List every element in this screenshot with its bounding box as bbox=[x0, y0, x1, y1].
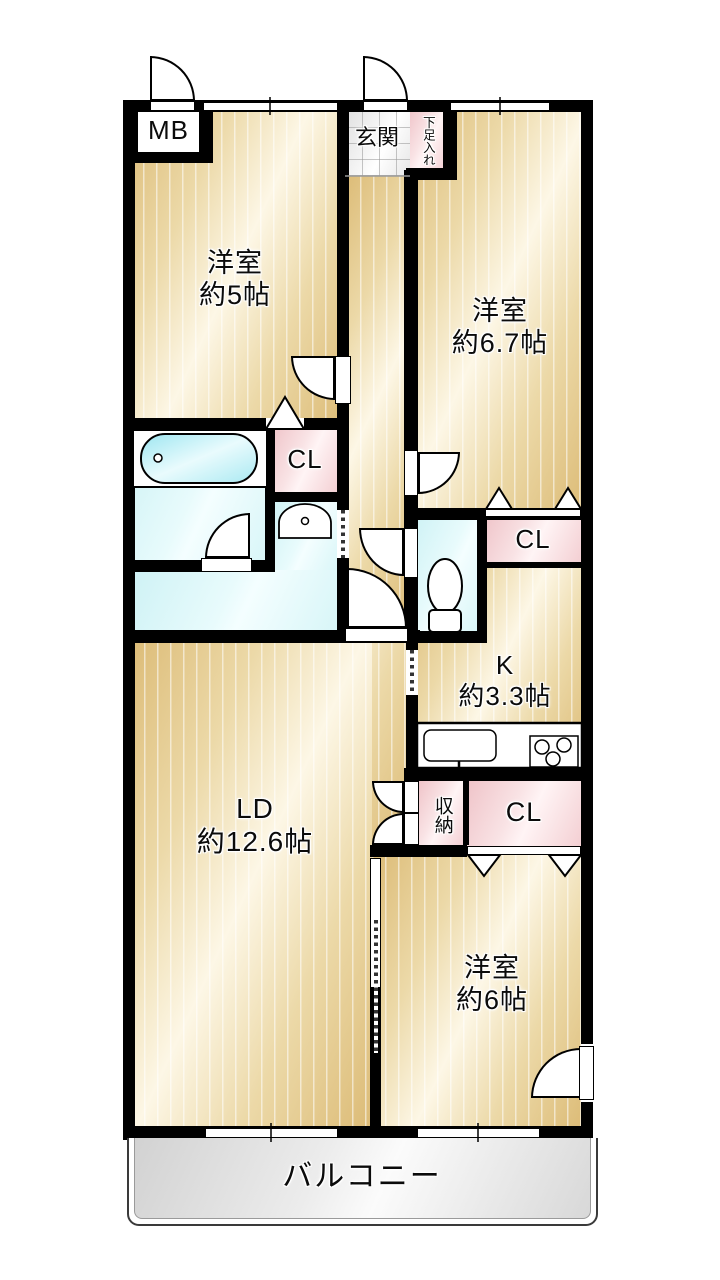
kitchen-size: 約3.3帖 bbox=[458, 681, 551, 712]
closet3-label: CL bbox=[467, 781, 581, 845]
closet1-opening bbox=[266, 418, 304, 430]
bedroom1-window bbox=[203, 102, 338, 111]
washroom-floor-lower bbox=[131, 570, 341, 634]
floorplan-canvas: MB 玄関 下足入れ 洋室 約5帖 洋室 約6.7帖 CL CL K 約3.3帖… bbox=[0, 0, 720, 1280]
storage-door-leaf-bottom bbox=[404, 813, 419, 845]
shoebox-label: 下足入れ bbox=[412, 110, 443, 172]
closet2-label: CL bbox=[483, 514, 583, 564]
closet1-label: CL bbox=[271, 430, 339, 488]
bedroom3-label: 洋室 約6帖 bbox=[412, 943, 572, 1027]
wall-toilet-bottom bbox=[404, 631, 487, 643]
bedroom1-door-leaf bbox=[335, 356, 351, 404]
bedroom3-name: 洋室 bbox=[464, 953, 520, 985]
closet1-label-text: CL bbox=[287, 444, 322, 475]
genkan-label: 玄関 bbox=[345, 118, 409, 158]
bedroom1-label: 洋室 約5帖 bbox=[160, 238, 310, 322]
toilet-door-leaf bbox=[404, 528, 418, 578]
bedroom1-name: 洋室 bbox=[207, 248, 263, 280]
wall-right bbox=[581, 100, 593, 1140]
washroom-opening-dash bbox=[341, 510, 345, 558]
living-name: LD bbox=[236, 792, 274, 825]
living-balcony-window bbox=[205, 1128, 338, 1138]
wall-kitchen-bottom bbox=[404, 768, 593, 781]
storage-door-leaf-top bbox=[404, 781, 419, 813]
entrance-door-swing bbox=[363, 56, 408, 101]
bedroom2-door-leaf bbox=[404, 450, 418, 496]
storage-label-text: 収納 bbox=[430, 796, 452, 834]
genkan-label-text: 玄関 bbox=[355, 125, 399, 151]
balcony-label: バルコニー bbox=[202, 1155, 522, 1199]
balcony-label-text: バルコニー bbox=[282, 1159, 441, 1194]
closet2-label-text: CL bbox=[515, 524, 550, 555]
wall-left bbox=[123, 100, 135, 1140]
closet3-label-text: CL bbox=[506, 797, 543, 829]
closet3-folding-track bbox=[467, 846, 581, 855]
bedroom2-window bbox=[450, 102, 550, 111]
bedroom1-size: 約5帖 bbox=[199, 280, 271, 312]
mb-label-text: MB bbox=[148, 115, 189, 146]
storage-label: 収納 bbox=[419, 785, 464, 845]
bedroom2-size: 約6.7帖 bbox=[452, 328, 549, 360]
wall-storage-bottom bbox=[370, 845, 467, 857]
bathroom-door-leaf bbox=[201, 558, 252, 572]
living-floor-lower bbox=[131, 633, 372, 1130]
living-bedroom3-sliding-track bbox=[374, 920, 378, 1053]
shoebox-label-text: 下足入れ bbox=[420, 116, 435, 166]
wall-closet1-bottom bbox=[265, 492, 349, 502]
living-label: LD 約12.6帖 bbox=[165, 783, 345, 867]
bedroom3-size: 約6帖 bbox=[456, 985, 528, 1017]
washroom-floor-upper bbox=[271, 500, 341, 572]
living-size: 約12.6帖 bbox=[197, 825, 314, 858]
mb-label: MB bbox=[138, 109, 199, 152]
bedroom3-balcony-window bbox=[417, 1128, 540, 1138]
kitchen-name: K bbox=[496, 650, 514, 681]
bedroom2-label: 洋室 約6.7帖 bbox=[425, 286, 575, 370]
wall-shoebox-right bbox=[443, 100, 457, 180]
kitchen-opening-dash bbox=[410, 650, 414, 695]
hallway-living-door-leaf bbox=[345, 628, 408, 642]
bedroom3-side-door-leaf bbox=[579, 1046, 594, 1100]
toilet-floor bbox=[415, 516, 479, 635]
entrance-door-leaf bbox=[363, 101, 408, 111]
wall-bedroom1-bottom bbox=[123, 418, 349, 430]
bedroom2-name: 洋室 bbox=[472, 296, 528, 328]
mb-door-swing bbox=[150, 56, 195, 101]
kitchen-label: K 約3.3帖 bbox=[430, 643, 580, 719]
